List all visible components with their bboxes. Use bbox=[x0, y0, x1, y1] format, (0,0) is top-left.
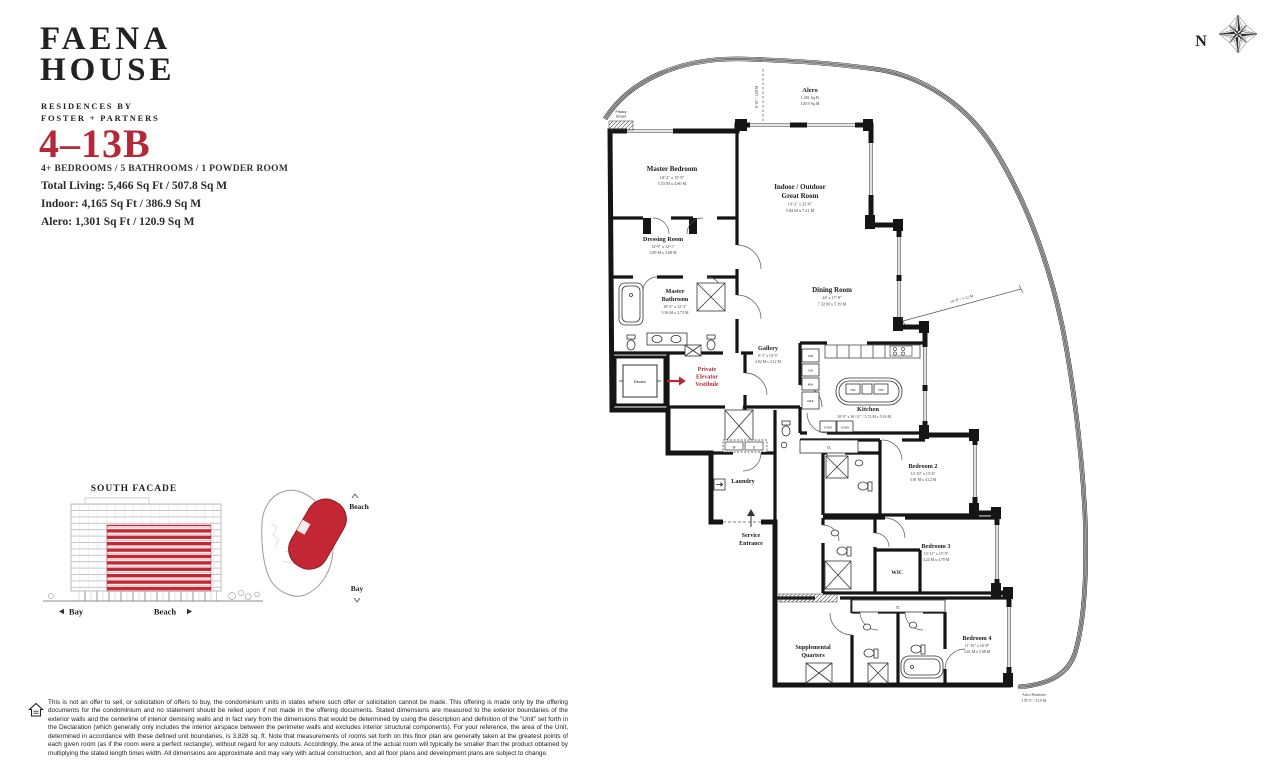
label-supplemental-2: Quarters bbox=[801, 653, 825, 659]
label-great-room-1: Indoor / Outdoor bbox=[774, 183, 826, 191]
label-gallery-m: 2.82 M x 3.12 M bbox=[755, 360, 781, 364]
beach-arrow-icon bbox=[187, 609, 192, 614]
facade-beach-label: Beach bbox=[154, 607, 176, 617]
label-master-bath-2: Bathroom bbox=[662, 296, 690, 303]
label-laundry: Laundry bbox=[731, 478, 755, 485]
label-vestibule-3: Vestibule bbox=[695, 382, 719, 388]
dim-alero-depth: 8'-10" / 2.69 M bbox=[755, 85, 759, 108]
label-dining-ft: 24' x 17'-8" bbox=[822, 295, 842, 300]
bath2-fixtures bbox=[855, 460, 872, 491]
label-bedroom3-ft: 13'-11" x 15'-9" bbox=[924, 552, 949, 556]
equal-housing-icon bbox=[28, 701, 44, 719]
washer-dryer-icons bbox=[723, 440, 767, 452]
label-service-1: Service bbox=[742, 533, 761, 539]
bath3-fixtures bbox=[831, 530, 851, 556]
facade-title: SOUTH FACADE bbox=[91, 484, 178, 494]
label-cm: CM bbox=[808, 369, 813, 373]
key-plan: Beach Bay bbox=[255, 485, 385, 610]
range-icon bbox=[890, 346, 912, 356]
unit-number: 4–13B bbox=[39, 120, 151, 167]
label-vestibule-2: Elevator bbox=[696, 375, 718, 381]
label-supplemental-1: Supplemental bbox=[795, 645, 831, 651]
compass-rose-icon bbox=[1219, 15, 1257, 53]
floorplan-sheet: FAENA HOUSE RESIDENCES BY FOSTER + PARTN… bbox=[0, 0, 1280, 768]
keyplan-bay-label: Bay bbox=[351, 584, 364, 593]
brand-sub1: RESIDENCES BY bbox=[41, 100, 160, 112]
label-gallery: Gallery bbox=[758, 345, 779, 352]
label-master-ft: 18'-2" x 15'-9" bbox=[660, 175, 685, 180]
unit-configuration: 4+ BEDROOMS / 5 BATHROOMS / 1 POWDER ROO… bbox=[41, 164, 288, 174]
label-elevator: Elevator bbox=[634, 380, 647, 384]
brand-logo: FAENA HOUSE bbox=[40, 24, 176, 87]
label-dressing-room: Dressing Room bbox=[643, 236, 684, 243]
kitchen-island bbox=[836, 378, 902, 405]
label-master-bath-ft: 18'-3" x 12'-3" bbox=[663, 304, 687, 309]
label-kitchen: Kitchen bbox=[857, 406, 879, 413]
label-bedroom4: Bedroom 4 bbox=[963, 635, 992, 642]
label-bedroom3: Bedroom 3 bbox=[922, 543, 951, 550]
label-alero: Alero bbox=[802, 87, 817, 94]
south-facade: SOUTH FACADE Bay Beach bbox=[35, 478, 265, 628]
label-gallery-ft: 9'-3" x 10'-3" bbox=[758, 354, 779, 358]
label-bedroom4-m: 3.61 M x 5.08 M bbox=[964, 650, 991, 654]
label-bedroom2: Bedroom 2 bbox=[909, 463, 938, 470]
side-dimension-line bbox=[901, 285, 1023, 325]
label-vestibule-1: Private bbox=[698, 367, 717, 373]
label-privacy-2: Screen bbox=[616, 115, 627, 119]
building-elevation bbox=[43, 498, 263, 601]
label-wr: WR bbox=[808, 354, 814, 358]
label-bedroom2-ft: 12'-10" x 13'-6" bbox=[911, 472, 936, 476]
privacy-screen bbox=[609, 121, 633, 130]
stat-total-living: Total Living: 5,466 Sq Ft / 507.8 Sq M bbox=[41, 178, 227, 196]
label-dressing-ft: 12'-9" x 12'-1" bbox=[651, 244, 675, 249]
label-master-bedroom: Master Bedroom bbox=[647, 165, 698, 173]
laundry-door-icon bbox=[714, 479, 725, 490]
label-master-bath-m: 5.56 M x 3.73 M bbox=[661, 310, 689, 315]
bathtub-icon bbox=[619, 283, 643, 325]
label-bedroom4-ft: 11'-10" x 16'-8" bbox=[965, 644, 990, 648]
label-alero-sqm: 120.9 Sq M bbox=[801, 101, 820, 106]
label-service-2: Entrance bbox=[739, 541, 763, 547]
dim-perimeter-2: 170'-5" / 51.9 M bbox=[1022, 699, 1047, 703]
bay-arrow-icon bbox=[59, 609, 64, 614]
keyplan-beach-arrow-icon bbox=[352, 494, 358, 498]
facade-bay-label: Bay bbox=[69, 607, 84, 617]
label-privacy-1: Privacy bbox=[615, 110, 626, 114]
unit-stats: Total Living: 5,466 Sq Ft / 507.8 Sq M I… bbox=[41, 178, 227, 231]
stat-alero: Alero: 1,301 Sq Ft / 120.9 Sq M bbox=[41, 214, 227, 232]
label-dw-1: DW bbox=[851, 388, 856, 392]
label-cl-1: CL bbox=[827, 446, 832, 450]
legal-disclaimer: This is not an offer to sell, or solicit… bbox=[48, 699, 568, 758]
label-great-m: 5.84 M x 7.21 M bbox=[786, 208, 815, 213]
label-oven-1: OVEN bbox=[824, 426, 832, 430]
dim-perimeter-1: Alero Perimeter bbox=[1022, 693, 1046, 697]
label-dw-2: DW bbox=[879, 388, 884, 392]
brand-line2: HOUSE bbox=[40, 55, 176, 86]
keyplan-beach-label: Beach bbox=[349, 502, 369, 511]
label-dressing-m: 3.89 M x 3.68 M bbox=[649, 250, 677, 255]
label-kitchen-dims: 18'-9" x 16'-11" / 5.72 M x 5.16 M bbox=[837, 415, 891, 419]
brand-line1: FAENA bbox=[40, 24, 176, 55]
label-bedroom3-m: 4.24 M x 4.79 M bbox=[923, 558, 950, 562]
label-ref: REF bbox=[807, 399, 813, 403]
supplemental-window-screen bbox=[779, 594, 837, 602]
label-great-room-2: Great Room bbox=[782, 192, 819, 200]
label-master-m: 5.53 M x 4.80 M bbox=[658, 181, 687, 186]
highlighted-floors bbox=[107, 525, 211, 591]
compass: N bbox=[1185, 8, 1275, 63]
elevator-direction-arrow bbox=[667, 377, 686, 386]
label-wic: WIC bbox=[891, 570, 903, 576]
label-oven-2: OVEN bbox=[841, 426, 849, 430]
label-mw: MW bbox=[808, 383, 814, 387]
label-dining-m: 7.32 M x 5.39 M bbox=[818, 302, 847, 307]
stat-indoor: Indoor: 4,165 Sq Ft / 386.9 Sq M bbox=[41, 196, 227, 214]
floor-plan: Alero 1,301 Sq Ft 120.9 Sq M Privacy Scr… bbox=[575, 55, 1120, 720]
powder-room-fixtures bbox=[781, 421, 790, 448]
label-washer: W bbox=[732, 446, 735, 450]
compass-north-label: N bbox=[1195, 33, 1207, 50]
label-master-bath-1: Master bbox=[666, 288, 685, 295]
label-bedroom2-m: 3.91 M x 4.12 M bbox=[910, 478, 937, 482]
label-dining-room: Dining Room bbox=[812, 286, 852, 294]
label-cl-2: CL bbox=[896, 606, 901, 610]
service-entrance-opening bbox=[723, 518, 761, 526]
keyplan-bay-arrow-icon bbox=[354, 598, 360, 602]
label-great-ft: 19'-2" x 23'-8" bbox=[788, 202, 813, 207]
